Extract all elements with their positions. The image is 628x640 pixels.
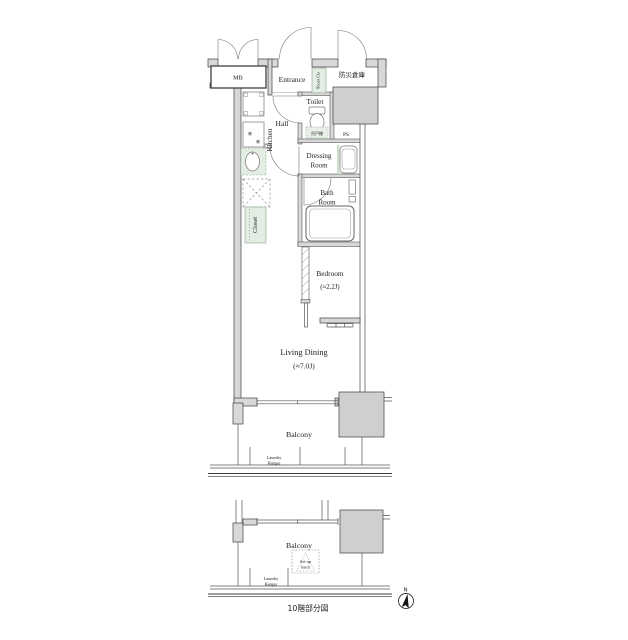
laundry-hanger-label-1: Laundry [267,455,283,460]
mb-door-left [218,40,238,60]
upper-plan: MB Entrance Shoes Cls 防災倉庫 [208,28,392,477]
bath-shelf [349,180,356,194]
wall-segment [298,92,302,96]
shaft-box-top [333,87,378,124]
kitchen-sink [246,152,260,171]
kitchen-area: ✳ ✳ Kitchen [241,92,274,175]
fridge-space [243,179,270,207]
room-label-bedroom: Bedroom [316,269,343,278]
wall-right-outer [360,124,365,398]
balcony-pillar [233,403,243,424]
room-label-shoes-closet: Shoes Cls [316,72,321,89]
balcony-pillar-lower [233,523,243,542]
room-label-ps: PS [343,132,349,138]
room-label-kitchen: Kitchen [265,128,274,151]
room-label-dressing-2: Room [310,162,328,170]
room-label-mb: MB [233,75,243,82]
wall-segment [298,174,302,246]
room-label-toilet: Toilet [307,97,324,106]
living-dining: Living Dining (≈7.0J) [280,348,327,371]
lower-plan: Balcony Set-up hatch Laundry Hanger 10階部… [208,500,392,613]
wall-segment [298,139,362,143]
faucet [252,153,254,155]
mb-door-right [239,40,259,60]
sliding-partition [302,247,309,300]
room-label-storage: 防災倉庫 [339,70,366,79]
toilet-room: Toilet 吊戸棚 [306,97,328,138]
partition-anchor [301,300,310,304]
compass: N [399,588,414,609]
room-label-closet: Closet [252,217,259,233]
bathtub [306,206,354,241]
hatch-label-2: hatch [301,565,311,570]
floor-plan-page: MB Entrance Shoes Cls 防災倉庫 [0,0,628,640]
wall-left-outer [234,85,241,407]
entrance-door [280,28,312,60]
bedroom: Bedroom (≈2.2J) [301,247,353,327]
hall-door [270,147,299,177]
stove-counter [243,122,264,147]
laundry-hanger-label-2: Hanger [268,461,281,466]
hatch-label-1: Set-up [300,559,311,564]
wall-segment [268,59,272,95]
living-window-lower [257,518,338,525]
storage-area: 防災倉庫 [333,70,378,124]
shaft-mid [339,392,392,437]
sliding-panel [305,303,308,327]
meter-box: MB [211,66,266,88]
wall-segment [312,59,338,67]
stove-burner-icon: ✳ [255,138,261,146]
living-window [257,399,338,406]
laundry-hanger-lower-1: Laundry [264,576,280,581]
balcony-rail-lower [210,586,390,589]
storage-door [338,31,367,60]
room-label-balcony: Balcony [286,430,312,439]
washer-pan [243,92,264,116]
wall-segment [298,242,362,247]
balcony-rail [210,465,390,468]
wall-ext-right [384,398,392,402]
bath-shelf-small [349,197,356,203]
wall-segment [243,519,257,525]
escape-hatch: Set-up hatch [292,550,319,573]
entrance-area: Entrance [272,75,306,93]
dressing-room: Dressing Room [307,145,357,173]
laundry-hanger-lower-2: Hanger [265,582,278,587]
plan-caption: 10階部分図 [287,603,328,613]
room-label-bath-1: Bath [320,189,334,197]
room-label-entrance: Entrance [279,75,306,84]
shaft-box-lower [340,510,383,553]
closet: Closet [245,207,266,243]
wall-segment [320,318,360,323]
room-label-hall: Hall [276,119,289,128]
room-label-bath-2: Room [318,199,336,207]
room-label-dressing-1: Dressing [307,152,332,160]
shoes-closet: Shoes Cls [312,68,326,93]
toilet-tank [309,107,325,114]
compass-north-label: N [403,588,407,594]
room-label-bedroom-size: (≈2.2J) [320,284,339,291]
bedroom-window [327,324,353,328]
cabinet-label: 吊戸棚 [311,130,323,136]
washbasin-counter [337,145,340,173]
shaft-box-mid [339,392,384,437]
wall-ext-right-lower [383,516,390,520]
room-label-living: Living Dining [280,348,327,357]
bath-room: Bath Room [306,180,356,241]
room-label-living-size: (≈7.0J) [293,362,315,371]
stove-burner-icon: ✳ [247,130,253,138]
wall-segment [298,174,362,178]
wall-segment [378,59,386,87]
room-label-balcony-lower: Balcony [286,541,312,550]
floor-plan-canvas: MB Entrance Shoes Cls 防災倉庫 [0,0,628,640]
